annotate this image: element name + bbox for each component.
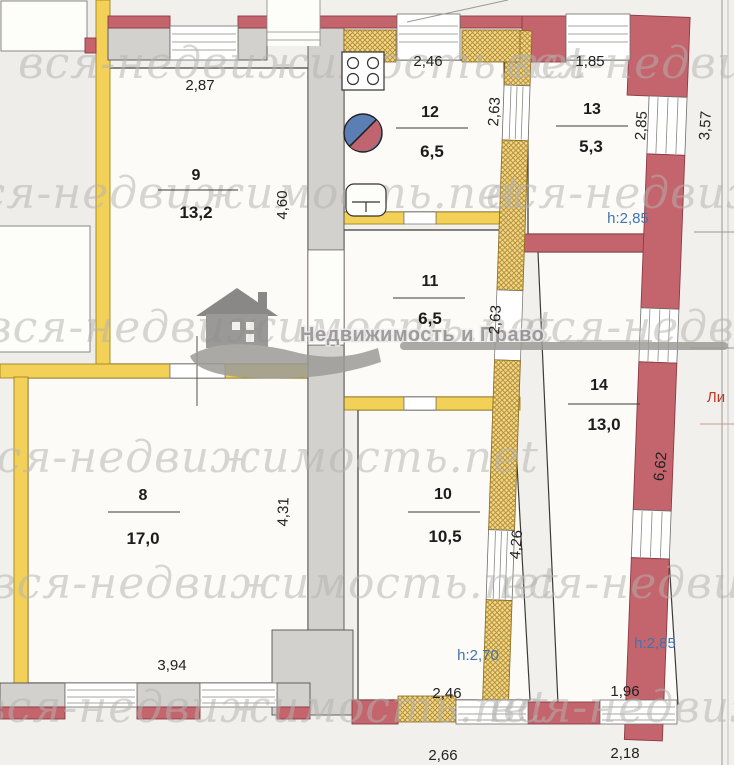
room-10-dim-right: 4,26 [507,529,526,560]
room-11-number: 11 [422,273,439,290]
room-11-area: 6,5 [418,309,442,328]
room-10-dim-bottom-ext: 2,66 [428,747,457,764]
room-9-area: 13,2 [179,203,212,222]
room-8-dim-right: 4,31 [274,497,292,527]
watermark-text: вся-недвижимость.net [502,558,734,609]
room-14-dim-bottom-ext: 2,18 [610,745,639,762]
room-8-area: 17,0 [126,529,159,548]
room-8-floor [28,378,308,683]
room-10-height-label: h:2,70 [457,647,499,664]
watermark-text: вся-недвижимость.net [18,38,587,89]
washbasin-icon [346,184,386,216]
room-12-number: 12 [421,104,439,121]
room-10-number: 10 [434,486,452,503]
room-12-area: 6,5 [420,142,444,161]
room-8-dim-bottom: 3,94 [157,657,186,674]
room-13-dim-right: 2,85 [632,111,651,141]
room-14-dim-right-outer: 6,62 [651,451,671,482]
stove-icon [342,52,384,90]
room-12-dim-right: 2,63 [485,97,504,127]
watermark-text: вся-недвижимость.net [0,558,559,609]
room-14-number: 14 [590,377,608,394]
room-14-dim-bottom: 1,96 [610,683,639,700]
kitchen-fixtures [342,52,386,216]
room-13-number: 13 [583,101,601,118]
room-9-dim-right: 4,60 [274,190,291,219]
room-13-area: 5,3 [579,137,603,156]
watermark-text: вся-недвижимость.net [0,168,523,219]
floor-plan-scan: вся-недвижимость.net вся-недвижимость.ne… [0,0,734,765]
sink-icon [344,114,382,152]
room-12-dim-top: 2,46 [413,53,442,70]
room-9-number: 9 [192,167,201,184]
watermark-text: вся-недвижимость.net [0,432,539,483]
watermark-text: вся-недвижимость.net [0,682,549,733]
room-9-dim-top: 2,87 [185,77,214,94]
room-10-dim-bottom-out: 2,46 [432,685,461,702]
room-13-height-label: h:2,85 [607,210,649,227]
room-13-dim-outer: 3,57 [696,111,715,141]
room-8-number: 8 [139,487,148,504]
liter-label: Ли [707,389,725,406]
room-13-dim-top: 1,85 [575,53,604,70]
room-11-dim-right: 2,63 [486,305,505,335]
room-14-height-label: h:2,85 [634,635,676,652]
room-10-area: 10,5 [428,527,461,546]
watermark-text: вся-недвижимость.net [506,38,734,89]
logo-underline [400,342,728,350]
floor-plan-svg: вся-недвижимость.net вся-недвижимость.ne… [0,0,734,765]
room-14-area: 13,0 [587,415,620,434]
